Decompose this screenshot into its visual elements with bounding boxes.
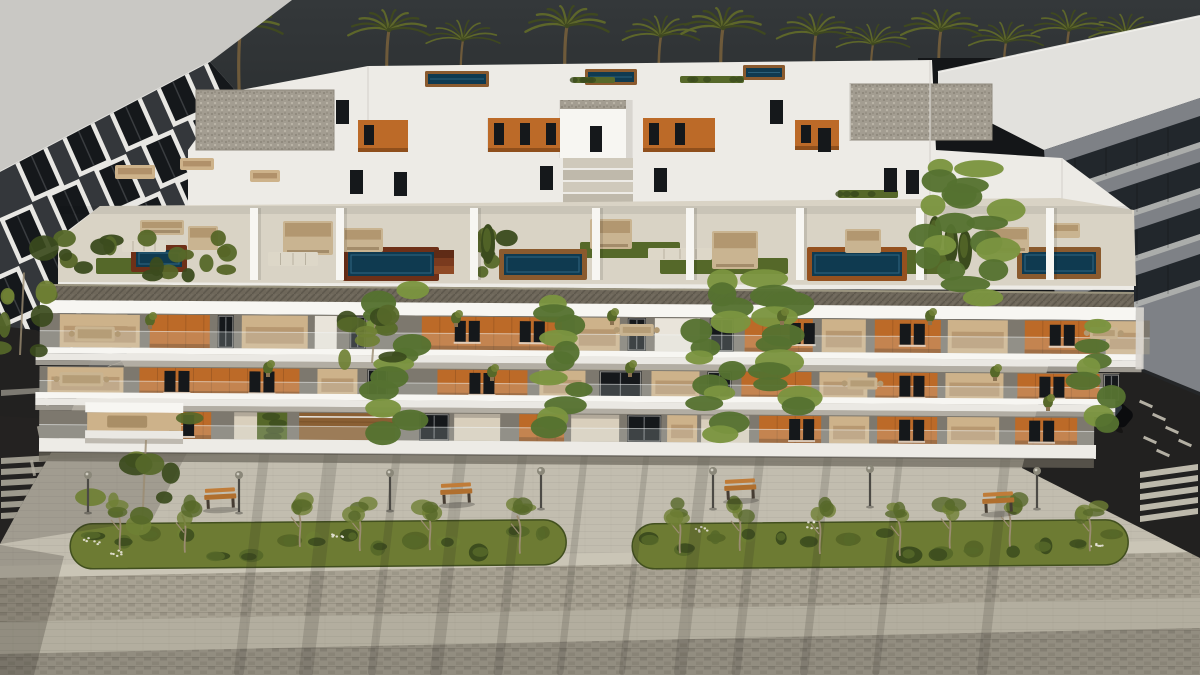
sun-lounger	[648, 248, 712, 260]
rooftop-lap-pool	[743, 65, 785, 80]
sun-lounger	[268, 252, 318, 266]
penthouse-window	[350, 170, 363, 194]
terrace-pool	[343, 247, 439, 281]
balcony-dining-set	[841, 377, 883, 389]
terrace-furniture	[343, 228, 383, 252]
penthouse-window	[770, 100, 783, 124]
terrace-furniture	[712, 231, 758, 269]
median-bush	[469, 543, 489, 561]
pool-water	[348, 252, 434, 276]
penthouse-orange-wall	[643, 118, 715, 152]
terrace-furniture	[283, 221, 333, 255]
penthouse-window	[540, 166, 553, 190]
architectural-render	[0, 0, 1200, 675]
rooftop-lap-pool	[425, 71, 489, 87]
cypress-shrub	[481, 224, 495, 264]
promenade-layer	[0, 436, 1200, 675]
penthouse-window	[654, 168, 667, 192]
median-strip	[632, 520, 1128, 569]
terrace-furniture	[845, 229, 881, 253]
terrace-divider-wall	[336, 208, 344, 280]
pool-water	[812, 252, 902, 276]
terrace-divider-wall	[470, 208, 478, 280]
penthouse-orange-wall	[795, 120, 839, 150]
stair-core	[560, 100, 633, 204]
penthouse-window	[884, 168, 897, 192]
penthouse-window	[336, 100, 349, 124]
facade-end-cap	[1136, 307, 1144, 369]
penthouse-window	[818, 128, 831, 152]
penthouse-orange-wall	[358, 120, 408, 152]
penthouse-orange-wall	[488, 118, 568, 152]
rooftop-hedge	[570, 77, 615, 83]
render-viewport	[0, 0, 1200, 675]
penthouse-window	[906, 170, 919, 194]
rooftop-furniture	[180, 158, 214, 170]
terrace-divider-wall	[592, 208, 600, 280]
rooftop-furniture	[250, 170, 280, 182]
terrace-divider-wall	[686, 208, 694, 280]
facade-layer	[35, 300, 1150, 468]
terrace-pool	[1017, 247, 1101, 279]
penthouse-window	[394, 172, 407, 196]
protruding-balcony	[85, 402, 183, 444]
terrace-divider-wall	[1046, 208, 1054, 280]
gravel-roof	[196, 90, 334, 150]
balcony-dining-set	[69, 326, 121, 341]
rooftop-hedge	[680, 76, 744, 83]
rooftop-furniture	[115, 165, 155, 179]
balcony-dining-set	[614, 324, 660, 336]
terrace-divider-wall	[796, 208, 804, 280]
balcony-dining-set	[53, 372, 109, 386]
terrace-divider-wall	[250, 208, 258, 280]
gravel-roof	[850, 84, 992, 140]
terrace-pool	[499, 249, 587, 280]
